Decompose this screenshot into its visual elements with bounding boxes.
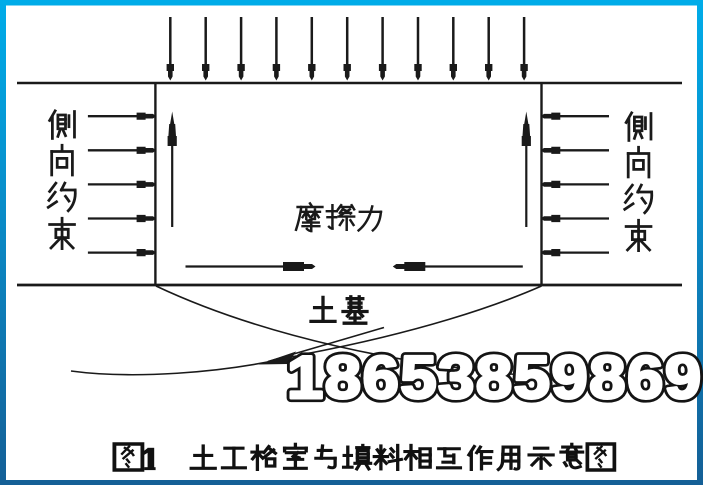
svg-text:18653859869: 18653859869 — [287, 344, 699, 411]
